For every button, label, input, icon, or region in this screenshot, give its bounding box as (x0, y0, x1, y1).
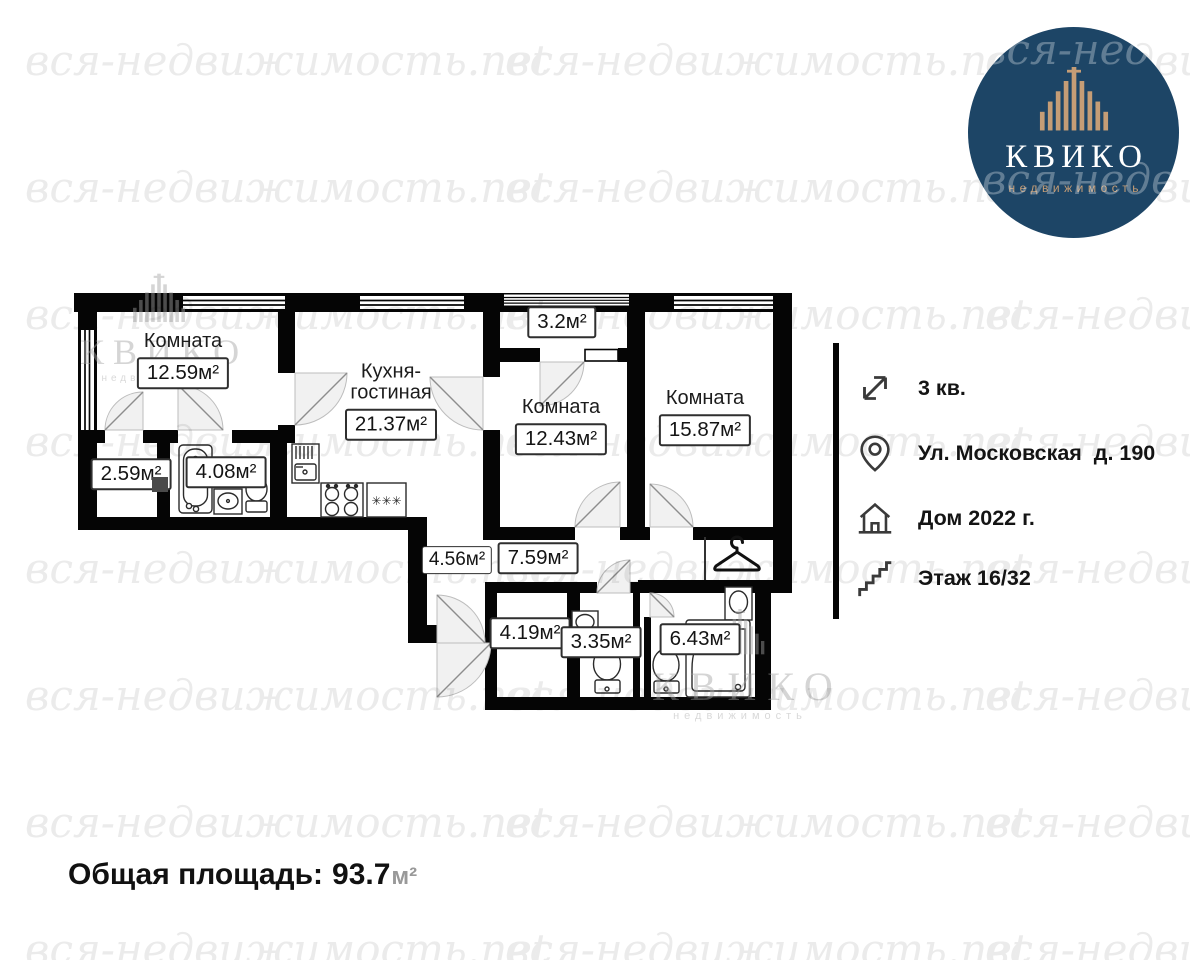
area-expand-icon (852, 365, 898, 411)
info-label: Дом 2022 г. (918, 506, 1035, 531)
room-name: Кухня-гостиная (339, 362, 443, 404)
info-divider (833, 343, 839, 619)
room-label-4-19: 4.19м² (490, 617, 571, 649)
room-area-box: 21.37м² (345, 409, 437, 441)
freezer-stars: ✳✳✳ (371, 494, 401, 508)
total-area-label: Общая площадь: (68, 858, 323, 891)
room-label-4-08: 4.08м² (186, 456, 267, 488)
watermark-text: вся-недвижимость.net (982, 155, 1179, 204)
agency-logo: КВИКО недвижимость вся-недвижимость.net … (968, 27, 1179, 238)
room-label-15-87: Комната 15.87м² (659, 388, 751, 446)
vent-shaft (152, 477, 168, 492)
info-label: Ул. Московская д. 190 (918, 441, 1155, 466)
info-row-year: Дом 2022 г. (852, 494, 1035, 542)
info-row-address: Ул. Московская д. 190 (852, 429, 1155, 477)
house-icon (852, 495, 898, 541)
total-area: Общая площадь:93.7м² (68, 858, 417, 892)
room-name: Комната (137, 331, 229, 352)
room-label-kitchen: Кухня-гостиная 21.37м² (339, 362, 443, 441)
room-label-3-35: 3.35м² (561, 626, 642, 658)
room-area-box: 4.56м² (422, 546, 492, 574)
room-name: Комната (515, 397, 607, 418)
room-area-box: 15.87м² (659, 414, 751, 446)
room-area-box: 12.59м² (137, 357, 229, 389)
real-estate-flyer: ✳✳✳ (0, 0, 1190, 960)
room-area-box: 3.35м² (561, 626, 642, 658)
room-area-box: 12.43м² (515, 423, 607, 455)
room-label-6-43: 6.43м² (660, 623, 741, 655)
room-label-12-43: Комната 12.43м² (515, 397, 607, 455)
watermark-text: вся-недвижимость.net (982, 27, 1179, 74)
info-label: Этаж 16/32 (918, 566, 1031, 591)
room-area-box: 4.19м² (490, 617, 571, 649)
room-label-12-59: Комната 12.59м² (137, 331, 229, 389)
info-row-area: 3 кв. (852, 364, 966, 412)
info-row-floor: Этаж 16/32 (852, 554, 1031, 602)
room-label-balcony: 3.2м² (527, 306, 596, 338)
room-name: Комната (659, 388, 751, 409)
room-area-box: 4.08м² (186, 456, 267, 488)
room-label-4-56: 4.56м² (422, 546, 492, 574)
total-area-unit: м² (391, 863, 417, 890)
location-pin-icon (852, 430, 898, 476)
room-area-box: 6.43м² (660, 623, 741, 655)
total-area-value: 93.7 (332, 858, 390, 891)
stairs-icon (852, 555, 898, 601)
room-area-box: 3.2м² (527, 306, 596, 338)
hanger-icon (715, 537, 760, 570)
room-label-7-59: 7.59м² (498, 542, 579, 574)
room-area-box: 7.59м² (498, 542, 579, 574)
info-label: 3 кв. (918, 376, 966, 401)
